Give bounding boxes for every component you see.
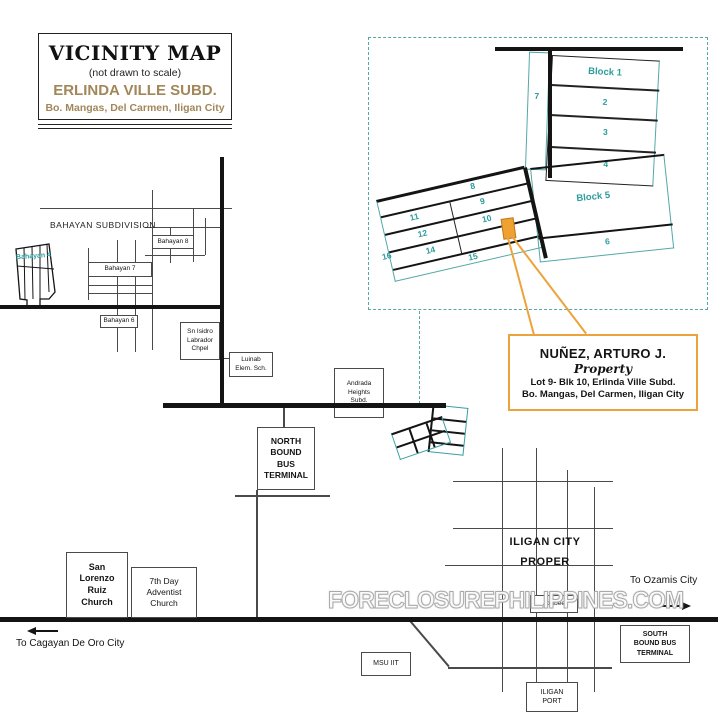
bahayan-7-box: Bahayan 7 [88,262,152,277]
sbbt-line: TERMINAL [637,649,673,658]
bahayan-line [135,240,136,352]
port-box: ILIGAN PORT [526,682,578,712]
slr-line: Lorenzo [80,573,115,585]
slr-church-box: San Lorenzo Ruiz Church [66,552,128,618]
nbbt-line: BUS [277,459,295,470]
adventist-line: Church [150,598,177,609]
andrada-line: Andrada [347,380,372,389]
city-proper-line2: PROPER [490,556,600,568]
block1-row-line [551,84,659,91]
cagayan-arrow-icon [27,627,36,635]
msu-label: MSU IIT [373,659,399,668]
subdivision-name: ERLINDA VILLE SUBD. [39,82,231,99]
bahayan-line [117,240,118,352]
chapel-line: Sn Isidro [187,328,213,337]
city-street [453,481,613,482]
lot-7-label: 7 [534,91,539,101]
lot-10-label: 10 [481,213,492,225]
bahayan-8-label: Bahayan 8 [157,238,188,247]
city-proper-label: ILIGAN CITY PROPER [490,536,600,568]
bahayan-line [152,190,153,350]
school-line: Elem. Sch. [235,365,266,374]
adventist-line: Adventist [147,587,182,598]
property-word: Property [574,362,632,376]
lot-14-label: 14 [425,244,436,256]
slr-line: Ruiz [88,585,107,597]
lot-11-label: 11 [409,211,420,223]
block1-row-line [548,146,656,153]
bahayan-line [88,285,152,286]
plat-location-connector [419,311,420,404]
nbbt-line: BOUND [270,447,301,458]
adventist-line: 7th Day [149,576,178,587]
plat-top-road [495,47,683,51]
road-middle [163,403,446,408]
sbbt-line: BOUND BUS [634,639,676,648]
plat-vertical-road [548,50,552,178]
bahayan-subdivision-label: BAHAYAN SUBDIVISION [50,220,156,230]
title-box: VICINITY MAP (not drawn to scale) ERLIND… [38,33,232,120]
to-cagayan-label: To Cagayan De Oro City [16,638,124,649]
vicinity-map: VICINITY MAP (not drawn to scale) ERLIND… [0,0,720,720]
lot-15-label: 15 [467,251,478,263]
mini-sketch-line [396,430,445,448]
port-line: ILIGAN [541,688,564,697]
south-terminal-box: SOUTH BOUND BUS TERMINAL [620,625,690,663]
bahayan-line [145,255,205,256]
school-line: Luinab [241,356,261,365]
block-1-label: Block 1 [588,66,622,79]
bahayan-7-label: Bahayan 7 [104,265,135,274]
block5-group: Block 5 6 [530,154,674,263]
city-proper-line1: ILIGAN CITY [490,536,600,548]
nbbt-line: NORTH [271,436,301,447]
msu-box: MSU IIT [361,652,411,676]
north-terminal-box: NORTH BOUND BUS TERMINAL [257,427,315,490]
sbbt-line: SOUTH [643,630,668,639]
bahayan-line [40,208,232,209]
nbbt-side-road [235,495,330,497]
to-ozamis-label: To Ozamis City [630,575,697,586]
bahayan-6-box: Bahayan 6 [100,315,138,328]
road-vertical [220,157,224,407]
lot-9-label: 9 [479,196,486,207]
city-street [536,448,537,694]
lot-6-label: 6 [605,236,611,246]
city-street [453,528,613,529]
title-box-underline [38,124,232,129]
map-title: VICINITY MAP [39,41,231,65]
bahayan-8-box: Bahayan 8 [152,235,194,249]
cagayan-arrow-line [34,630,58,632]
property-line2: Bo. Mangas, Del Carmen, Iligan City [522,389,684,400]
andrada-line: Heights [348,389,370,398]
school-box: Luinab Elem. Sch. [229,352,273,377]
property-owner: NUÑEZ, ARTURO J. [540,346,666,361]
chapel-box: Sn Isidro Labrador Chpel [180,322,220,360]
adventist-church-box: 7th Day Adventist Church [131,567,197,618]
lot-col-line [449,200,462,253]
city-street [502,448,503,692]
map-scale-note: (not drawn to scale) [39,67,231,79]
property-line1: Lot 9- Blk 10, Erlinda Ville Subd. [531,377,676,388]
lot-12-label: 12 [417,227,428,239]
city-street [567,470,568,692]
nbbt-connector [283,407,285,428]
bahayan-line [88,293,152,294]
lot-16-label: 16 [381,250,392,262]
bahayan-line [145,227,220,228]
road-bahayan [0,305,223,309]
lot-2-label: 2 [602,97,607,107]
subdivision-location: Bo. Mangas, Del Carmen, Iligan City [39,102,231,114]
block1-row-line [550,114,658,121]
bahayan-line [205,218,206,255]
nbbt-line: TERMINAL [264,470,308,481]
port-line: PORT [542,697,561,706]
andrada-box: Andrada Heights Subd. [334,368,384,418]
lot-8-label: 8 [469,180,476,191]
coastal-road [448,667,612,669]
property-callout: NUÑEZ, ARTURO J. Property Lot 9- Blk 10,… [508,334,698,411]
coastal-road-diagonal [408,619,449,667]
chapel-line: Chpel [192,345,209,354]
slr-line: San [89,562,106,574]
chapel-line: Labrador [187,337,213,346]
watermark: FORECLOSUREPHILIPPINES.COM [328,587,712,615]
slr-line: Church [81,597,113,609]
lot-3-label: 3 [603,127,608,137]
road-to-highway [256,490,258,618]
bahayan-6-label: Bahayan 6 [103,317,134,326]
block-5-label: Block 5 [576,190,611,204]
